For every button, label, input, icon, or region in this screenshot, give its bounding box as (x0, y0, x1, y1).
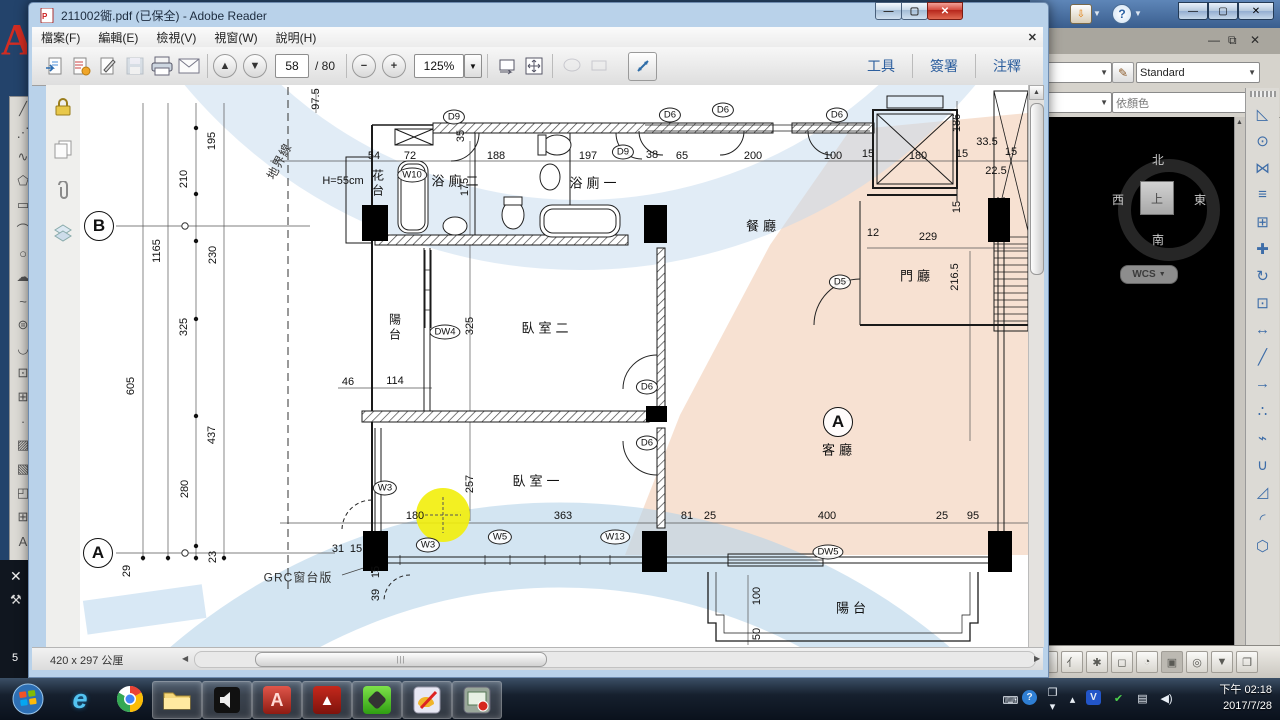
rotate-icon[interactable]: ↻ (1250, 262, 1276, 289)
menu-file[interactable]: 檔案(F) (32, 27, 89, 48)
svg-text:P: P (42, 12, 48, 21)
dimension-label: 180 (406, 510, 424, 522)
room-label: 浴廁二 (431, 171, 482, 190)
scroll-right-arrow[interactable]: ▶ (1034, 654, 1040, 663)
join-icon[interactable]: ∪ (1250, 451, 1276, 478)
comment-button[interactable]: 注釋 (981, 56, 1033, 76)
dimension-label: 257 (464, 475, 476, 493)
scroll-up-icon[interactable]: ▲ (1236, 119, 1243, 126)
tray-caret-up-icon[interactable]: ▴ (1064, 691, 1081, 707)
room-label: 陽台 (836, 598, 870, 617)
viewcube-west[interactable]: 西 (1112, 191, 1124, 208)
dimension-label: 400 (818, 510, 836, 522)
app-window-icon[interactable]: ❐ (1236, 651, 1258, 673)
dimension-label: 180 (909, 150, 927, 162)
dimension-label: 25 (936, 510, 948, 522)
opening-tag: W13 (600, 530, 630, 545)
menu-view[interactable]: 檢視(V) (147, 27, 205, 48)
desktop: A ╱⋰∿⬠▭⌒○☁~⊜◡⊡⊞·▨▧◰⊞A◉ ✕ ⚒ 5 ✕ ⇩ ▼ ? ▼ —… (0, 0, 1280, 720)
opening-tag: D9 (612, 145, 634, 160)
dimension-label: 186 (951, 114, 963, 132)
dimension-label: 97.5 (310, 88, 322, 109)
dimension-label: 65 (676, 150, 688, 162)
trim-icon[interactable]: ╱ (1250, 343, 1276, 370)
dimension-label: 54 (368, 150, 380, 162)
taskbar: eA▲⌨?❐▾▴V✔▤◀)下午 02:182017/7/28 (0, 678, 1280, 720)
clock[interactable]: 下午 02:182017/7/28 (1219, 682, 1272, 714)
fit-page-icon[interactable] (520, 53, 547, 80)
viewcube[interactable]: 北 西 東 南 上 (1104, 145, 1214, 255)
dimension-label: 15 (1005, 146, 1017, 158)
tray-keyboard-icon[interactable]: ⌨ (1002, 692, 1019, 708)
dimension-label: 23 (207, 551, 219, 563)
maximize-button[interactable]: ▢ (1208, 2, 1238, 20)
scroll-mode-icon[interactable] (493, 53, 520, 80)
adobe-sidebar (46, 85, 81, 647)
taskbar-snipping-app-button[interactable] (452, 681, 502, 719)
opening-tag: D6 (636, 436, 658, 451)
expand-panes-button[interactable] (628, 52, 657, 81)
taskbar-internet-explorer-button[interactable]: e (56, 681, 104, 717)
dimension-label: 72 (404, 150, 416, 162)
opening-tag: W3 (416, 538, 440, 553)
sign-button[interactable]: 簽署 (918, 56, 970, 76)
paperclip-icon[interactable] (53, 181, 73, 208)
dimension-label: 81 (681, 510, 693, 522)
tray-volume-icon[interactable]: ◀) (1158, 690, 1175, 706)
lightbulb-icon[interactable]: ◎ (1186, 651, 1208, 673)
dimension-label: 15 (951, 201, 963, 213)
opening-tag: D6 (826, 108, 848, 123)
autocad-statusbar: 亻亻✱◻◔▣◎▼❐ (1030, 645, 1280, 678)
child-close-icon[interactable]: ✕ (1250, 33, 1260, 47)
tools-button[interactable]: 工具 (855, 56, 907, 76)
menu-window[interactable]: 視窗(W) (205, 27, 266, 48)
save-icon[interactable] (121, 53, 148, 80)
caret-down-icon: ▼ (1248, 68, 1256, 77)
room-label: 臥室一 (512, 471, 563, 490)
tray-date: 2017/7/28 (1219, 698, 1272, 714)
print-icon[interactable] (148, 53, 175, 80)
zoom-out-button[interactable]: − (352, 54, 376, 78)
dimension-label: 437 (206, 426, 218, 444)
array-icon[interactable]: ⊞ (1250, 208, 1276, 235)
dimension-label: 197 (579, 150, 597, 162)
close-button[interactable]: ✕ (1238, 2, 1274, 20)
erase-icon[interactable]: ◺ (1250, 100, 1276, 127)
tray-time: 下午 02:18 (1219, 682, 1272, 698)
scroll-up-arrow[interactable]: ▲ (1029, 85, 1044, 100)
dimension-label: 210 (178, 170, 190, 188)
vertical-scroll-thumb[interactable] (1030, 103, 1044, 275)
sign-in-icon[interactable]: ⇩ (1070, 4, 1092, 24)
taskbar-start-button[interactable] (4, 681, 52, 717)
grid-bubble: A (83, 538, 113, 568)
opening-tag: D9 (443, 110, 465, 125)
tray-help-icon[interactable]: ? (1022, 690, 1037, 705)
pdf-file-icon: P (40, 8, 55, 23)
annotation-dish-icon[interactable]: ◔ (1136, 651, 1158, 673)
dimension-label: 25 (704, 510, 716, 522)
style-brush-icon[interactable]: ✎ (1112, 62, 1134, 83)
viewcube-south[interactable]: 南 (1152, 231, 1164, 248)
plot-style-value: 依顏色 (1116, 95, 1149, 111)
adobe-titlebar[interactable]: P 211002衚.pdf (已保全) - Adobe Reader (40, 6, 860, 24)
dimension-label: 31 (332, 543, 344, 555)
floorplan-labels: 54721881973865200100151801533.51522.5461… (80, 85, 1028, 647)
dimension-label: 200 (744, 150, 762, 162)
caret-down-icon: ▼ (1100, 98, 1108, 107)
extend-icon[interactable]: → (1250, 370, 1276, 397)
tray-caret-down-icon[interactable]: ▾ (1044, 698, 1061, 714)
wcs-label: WCS (1132, 269, 1155, 280)
autocad-toolbar-row1: ▼ ✎ Standard▼ (1030, 54, 1280, 88)
room-label: 浴廁一 (569, 173, 620, 192)
dimension-label: 95 (967, 510, 979, 522)
gear-icon[interactable]: ✱ (1086, 651, 1108, 673)
adobe-toolbar: ▲ ▼ 58 / 80 − + 125% ▼ 工具簽署注釋 (32, 47, 1043, 86)
menu-help[interactable]: 說明(H) (267, 27, 326, 48)
tray-network-icon[interactable]: ▤ (1134, 690, 1151, 706)
sign-document-icon[interactable] (94, 53, 121, 80)
minimize-button[interactable]: — (1178, 2, 1208, 20)
zoom-level-select[interactable]: 125% (414, 54, 464, 78)
scroll-left-arrow[interactable]: ◀ (182, 654, 188, 663)
opening-tag: D5 (829, 275, 851, 290)
layout-walk-icon[interactable]: 亻 (1061, 651, 1083, 673)
close-icon[interactable]: ✕ (10, 568, 22, 585)
room-label: 客廳 (822, 440, 856, 459)
close-button[interactable]: ✕ (927, 2, 963, 20)
child-restore-icon[interactable]: ⧉ (1228, 33, 1237, 48)
opening-tag: W3 (373, 481, 397, 496)
taskbar-autocad-button[interactable]: A (252, 681, 302, 719)
caret-down-icon[interactable]: ▼ (1134, 9, 1142, 18)
wcs-pill[interactable]: WCS▼ (1120, 265, 1178, 284)
room-label: 臥室二 (521, 318, 572, 337)
document-size-label: 420 x 297 公厘 (50, 652, 123, 668)
dimension-label: 114 (386, 375, 404, 387)
dimension-label: 35 (455, 130, 467, 142)
zoom-in-button[interactable]: + (382, 54, 406, 78)
taskbar-audio-app-button[interactable] (202, 681, 252, 719)
next-page-button[interactable]: ▼ (243, 54, 267, 78)
taskbar-converter-app-button[interactable] (352, 681, 402, 719)
dimension-label: 15 (862, 148, 874, 160)
opening-tag: W10 (397, 168, 427, 183)
scale-icon[interactable]: ⊡ (1250, 289, 1276, 316)
move-icon[interactable]: ✚ (1250, 235, 1276, 262)
lock-icon[interactable] (53, 97, 73, 122)
dimension-label: 188 (487, 150, 505, 162)
command-text-fragment: 5 (12, 652, 18, 664)
opening-tag: W5 (488, 530, 512, 545)
maximize-button[interactable]: ▢ (901, 2, 928, 20)
viewcube-top-face[interactable]: 上 (1140, 181, 1174, 215)
fillet-icon[interactable]: ◜ (1250, 505, 1276, 532)
text-style-combo[interactable]: Standard▼ (1136, 62, 1260, 83)
create-pdf-icon[interactable] (67, 53, 94, 80)
dimension-label: 100 (824, 150, 842, 162)
autocad-drawing-area[interactable]: 北 西 東 南 上 WCS▼ (1044, 117, 1234, 645)
unlock-icon[interactable]: ◻ (1111, 651, 1133, 673)
viewcube-north[interactable]: 北 (1152, 151, 1164, 168)
layers-icon[interactable] (53, 223, 73, 248)
taskbar-adobe-reader-button[interactable]: ▲ (302, 681, 352, 719)
room-label: 陽台 (387, 313, 404, 343)
help-icon[interactable]: ? (1112, 4, 1132, 24)
grid-bubble: B (84, 211, 114, 241)
wrench-icon[interactable]: ⚒ (10, 592, 22, 608)
text-style-value: Standard (1140, 67, 1185, 79)
dimension-label: 15 (956, 148, 968, 160)
dimension-label: 325 (464, 317, 476, 335)
room-label: 門廳 (900, 266, 934, 285)
taskbar-chrome-button[interactable] (106, 681, 154, 717)
adobe-statusbar: 420 x 297 公厘 ◀ ||| ▶ (32, 647, 1043, 670)
dimension-label: 229 (919, 231, 937, 243)
dimension-label: 46 (342, 376, 354, 388)
pdf-document-area[interactable]: 54721881973865200100151801533.51522.5461… (80, 85, 1028, 647)
page-number-input[interactable]: 58 (275, 54, 309, 78)
dimension-label: 363 (554, 510, 572, 522)
horizontal-scroll-track[interactable]: ||| (194, 651, 1036, 668)
vertical-scrollbar[interactable]: ▲ (1028, 85, 1044, 647)
plan-note: GRC窗台版 (264, 569, 333, 586)
plan-note: 地界線 (262, 140, 295, 182)
dimension-label: 15 (350, 543, 362, 555)
autocad-toolbar-row2: er▼ 依顏色▼ (1030, 87, 1280, 118)
previous-page-button[interactable]: ▲ (213, 54, 237, 78)
plot-style-combo[interactable]: 依顏色▼ (1112, 92, 1260, 113)
dimension-label: 325 (178, 318, 190, 336)
room-label: 花台 (370, 169, 387, 199)
taskbar-file-explorer-button[interactable] (152, 681, 202, 719)
dimension-label: 39 (370, 589, 382, 601)
caret-down-icon: ▼ (1100, 68, 1108, 77)
offset-icon[interactable]: ≡ (1250, 181, 1276, 208)
viewcube-east[interactable]: 東 (1194, 191, 1206, 208)
dimension-label: 33.5 (976, 136, 997, 148)
room-label: 餐廳 (746, 216, 780, 235)
dimension-label: 12 (867, 227, 879, 239)
minimize-button[interactable]: — (875, 2, 902, 20)
opening-tag: D6 (636, 380, 658, 395)
open-file-icon[interactable] (40, 53, 67, 80)
dimension-label: 605 (125, 377, 137, 395)
chamfer-icon[interactable]: ◿ (1250, 478, 1276, 505)
dimension-label: 100 (751, 587, 763, 605)
dimension-label: 22.5 (985, 165, 1006, 177)
child-minimize-icon[interactable]: — (1208, 33, 1220, 47)
tray-usb-safe-icon[interactable]: ✔ (1110, 690, 1127, 706)
adobe-title-text: 211002衚.pdf (已保全) - Adobe Reader (61, 7, 267, 24)
autocad-titlebar[interactable]: ✕ ⇩ ▼ ? ▼ — ▢ ✕ (1030, 0, 1280, 28)
caret-down-icon[interactable]: ▼ (1093, 9, 1101, 18)
dimension-label: 1165 (151, 239, 163, 263)
dimension-label: 29 (121, 565, 133, 577)
dimension-label: 280 (179, 480, 191, 498)
autocad-logo-icon[interactable]: A (1, 14, 27, 78)
stamp-icon[interactable] (585, 53, 612, 80)
opening-tag: D6 (659, 108, 681, 123)
break-at-point-icon[interactable]: ∴ (1250, 397, 1276, 424)
pages-icon[interactable] (53, 139, 73, 164)
dimension-label: 195 (206, 132, 218, 150)
comment-bubble-icon[interactable] (558, 53, 585, 80)
adobe-menubar: 檔案(F)編輯(E)檢視(V)視窗(W)說明(H) ✕ (32, 27, 1043, 48)
email-icon[interactable] (175, 53, 202, 80)
dimension-label: 15 (370, 566, 382, 578)
explode-icon[interactable]: ⬡ (1250, 532, 1276, 559)
page-total-label: / 80 (309, 59, 341, 73)
opening-tag: DW5 (812, 545, 843, 560)
break-icon[interactable]: ⌁ (1250, 424, 1276, 451)
tray-v-app-icon[interactable]: V (1086, 690, 1101, 705)
autocad-window: ✕ ⇩ ▼ ? ▼ — ▢ ✕ — ⧉ ✕ ▼ ✎ Standard▼ er▼ … (1030, 0, 1280, 678)
caret-down-icon: ▼ (1159, 271, 1166, 278)
mirror-icon[interactable]: ⋈ (1250, 154, 1276, 181)
dimension-label: H=55cm (322, 175, 363, 187)
caret-icon[interactable]: ▼ (1211, 651, 1233, 673)
copy-icon[interactable]: ⊙ (1250, 127, 1276, 154)
autocad-modify-toolbar: ◺⊙⋈≡⊞✚↻⊡↔╱→∴⌁∪◿◜⬡ (1245, 88, 1279, 645)
opening-tag: DW4 (429, 325, 460, 340)
dimension-label: 216.5 (949, 263, 961, 291)
menu-edit[interactable]: 編輯(E) (89, 27, 147, 48)
image-frame-icon[interactable]: ▣ (1161, 651, 1183, 673)
dimension-label: 38 (646, 149, 658, 161)
drawing-scrollbar[interactable]: ▲ (1234, 117, 1245, 645)
zoom-caret-button[interactable]: ▼ (464, 54, 482, 78)
dimension-label: 50 (751, 628, 763, 640)
dimension-label: 230 (207, 246, 219, 264)
grid-bubble: A (823, 407, 853, 437)
pane-close-icon[interactable]: ✕ (1028, 31, 1037, 44)
stretch-icon[interactable]: ↔ (1250, 316, 1276, 343)
taskbar-paint-app-button[interactable] (402, 681, 452, 719)
horizontal-scroll-thumb[interactable]: ||| (255, 652, 547, 667)
opening-tag: D6 (712, 103, 734, 118)
autocad-childwindow-bar: — ⧉ ✕ (1030, 28, 1280, 55)
